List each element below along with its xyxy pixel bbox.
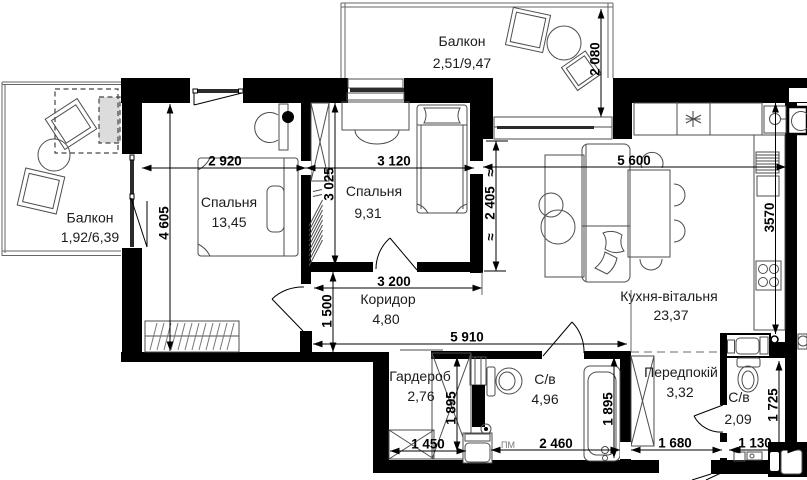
svg-text:2 920: 2 920: [208, 154, 242, 169]
svg-text:5 600: 5 600: [617, 153, 651, 168]
svg-text:3 025: 3 025: [322, 167, 337, 201]
svg-text:Передпокій: Передпокій: [644, 364, 718, 380]
svg-text:2 460: 2 460: [539, 436, 573, 451]
svg-text:3 200: 3 200: [377, 274, 411, 289]
svg-text:1 895: 1 895: [444, 391, 459, 425]
svg-text:С/в: С/в: [728, 389, 749, 405]
svg-text:Спальня: Спальня: [346, 183, 402, 199]
svg-text:3,32: 3,32: [666, 384, 693, 400]
svg-text:5 910: 5 910: [450, 330, 484, 345]
svg-text:2,76: 2,76: [407, 388, 434, 404]
svg-text:4,80: 4,80: [372, 311, 399, 327]
svg-text:Балкон: Балкон: [67, 210, 114, 226]
svg-text:1 130: 1 130: [738, 436, 772, 451]
svg-text:1 500: 1 500: [320, 294, 335, 328]
svg-text:1 680: 1 680: [658, 436, 692, 451]
svg-text:≈: ≈: [483, 233, 498, 241]
svg-text:Балкон: Балкон: [439, 33, 486, 49]
svg-text:4 605: 4 605: [157, 206, 172, 240]
svg-text:3 120: 3 120: [377, 154, 411, 169]
svg-text:С/в: С/в: [534, 371, 555, 387]
svg-text:Коридор: Коридор: [360, 291, 416, 307]
svg-text:2 405: 2 405: [483, 186, 498, 220]
svg-text:1 895: 1 895: [601, 392, 616, 426]
svg-text:≈: ≈: [483, 169, 498, 177]
svg-text:9,31: 9,31: [354, 205, 381, 221]
svg-text:1 725: 1 725: [766, 388, 781, 422]
svg-text:Кухня-вітальня: Кухня-вітальня: [620, 288, 718, 304]
svg-text:Гардероб: Гардероб: [389, 368, 451, 384]
svg-text:23,37: 23,37: [653, 307, 688, 323]
svg-text:3570: 3570: [762, 203, 777, 233]
svg-text:1 450: 1 450: [411, 437, 445, 452]
svg-text:ПМ: ПМ: [501, 440, 515, 450]
svg-text:4,96: 4,96: [531, 391, 558, 407]
svg-text:2,09: 2,09: [724, 411, 751, 427]
svg-text:2 080: 2 080: [588, 42, 603, 76]
svg-text:13,45: 13,45: [211, 214, 246, 230]
svg-text:1,92/6,39: 1,92/6,39: [61, 229, 120, 245]
svg-text:2,51/9,47: 2,51/9,47: [433, 55, 492, 71]
svg-text:Спальня: Спальня: [201, 194, 257, 210]
